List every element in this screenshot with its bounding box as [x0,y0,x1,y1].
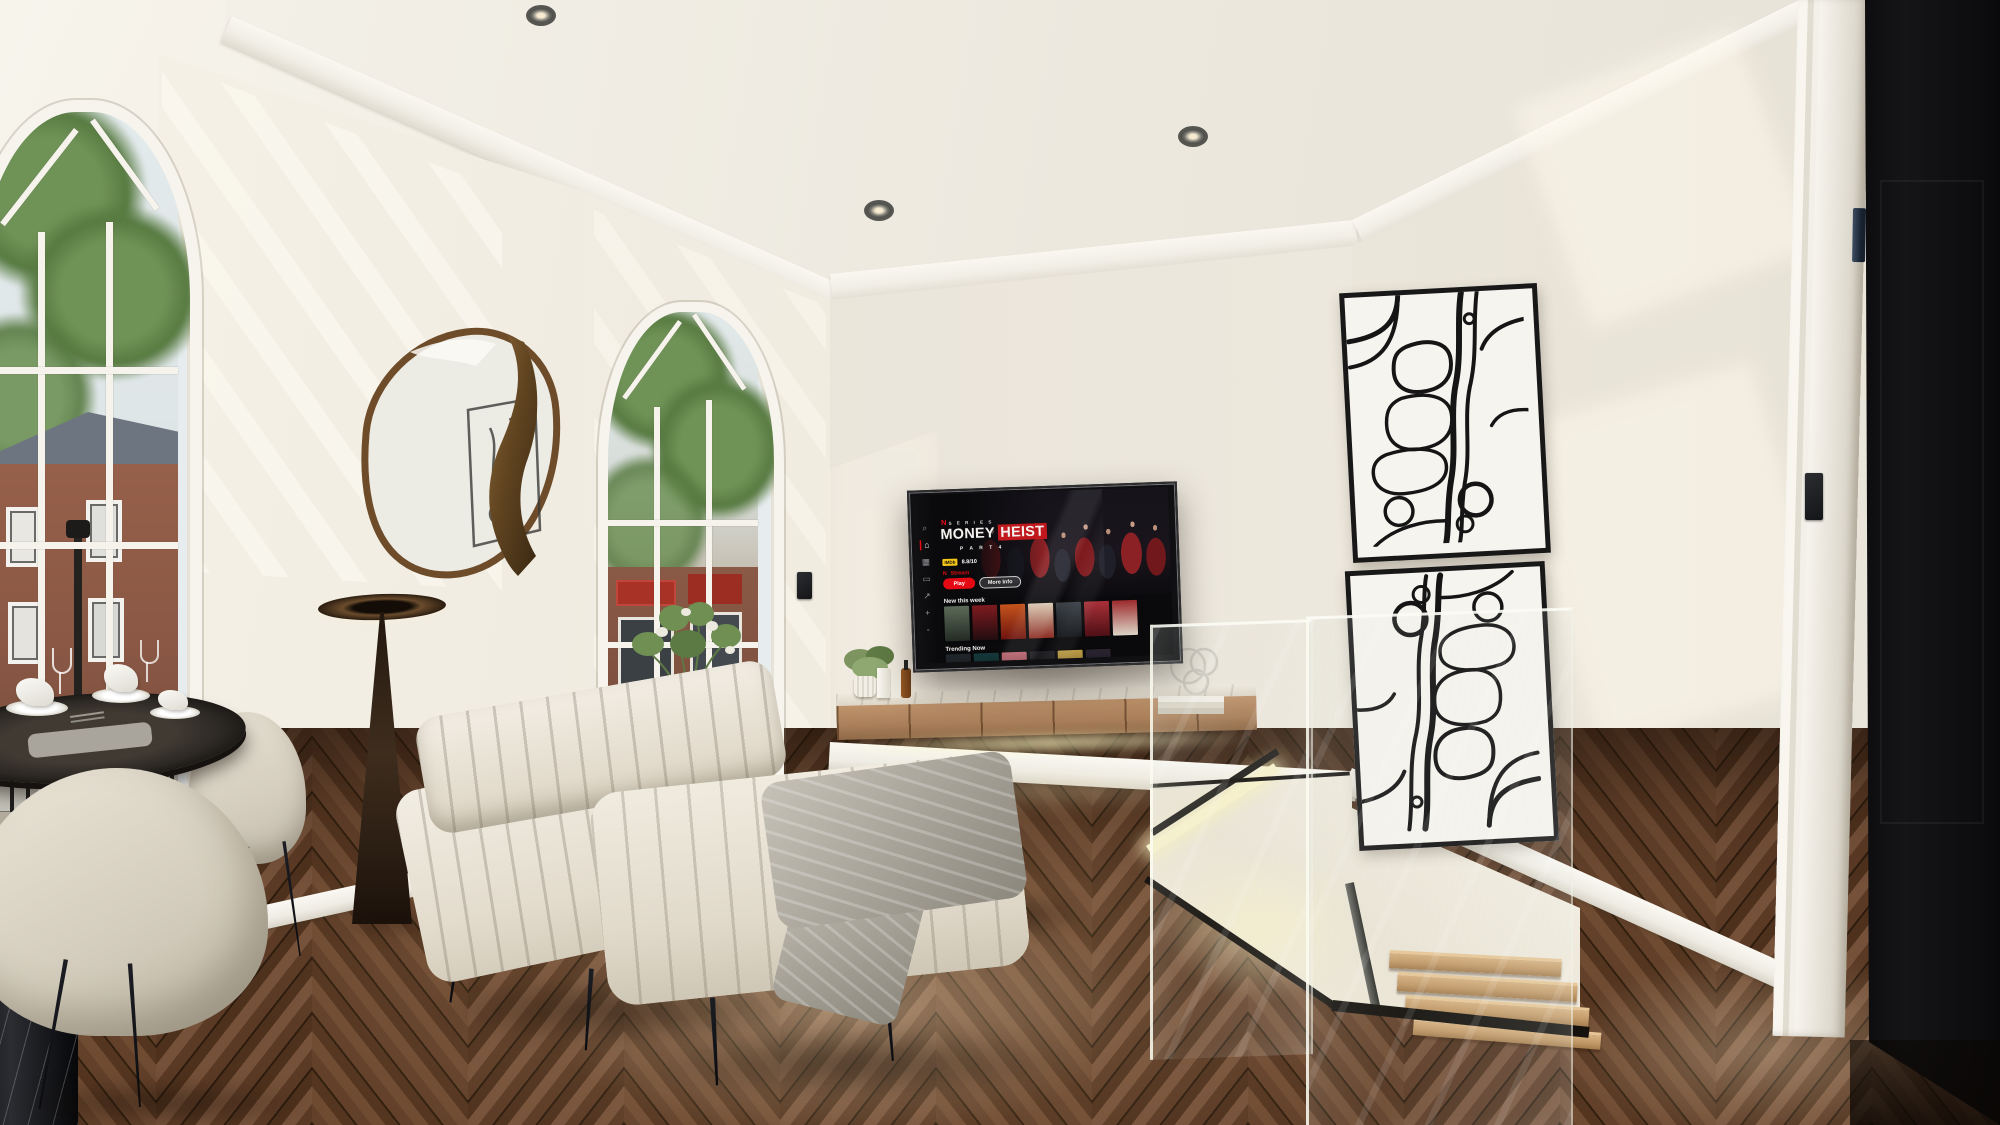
glass-reflection [1309,610,1571,1125]
wine-glass [140,640,159,664]
stream-label: Stream [950,570,969,577]
shows-icon[interactable]: ▦ [920,557,931,567]
ceiling-spotlight [864,200,894,221]
wine-glass [52,648,72,674]
decor-box [877,668,890,698]
door-hinge [1852,208,1866,262]
window-muntin [0,367,178,374]
stream-row: N Stream [943,568,970,578]
play-button[interactable]: Play [943,577,975,589]
netflix-sidebar: ⌕ ⌂ ▦ ▭ ↗ + ◦ [912,495,940,664]
door-panel-line [1880,180,1984,824]
building-window [6,507,40,567]
ceiling-spotlight [1178,126,1208,147]
organic-wall-mirror [350,318,580,618]
poster[interactable] [1112,600,1138,636]
wall-art-upper [1339,283,1551,563]
ceiling-spotlight [526,5,556,26]
plant-pot [854,676,876,697]
building-window [8,602,42,664]
decor-box [891,674,900,698]
poster[interactable] [946,654,972,664]
search-icon[interactable]: ⌕ [919,523,930,533]
stream-n-badge: N [943,570,947,576]
window-muntin [608,520,758,526]
living-room-scene: ⌕ ⌂ ▦ ▭ ↗ + ◦ N S E R I E S MONEYHEIST P… [0,0,2000,1125]
glass-reflection [1153,622,1311,1060]
home-icon[interactable]: ⌂ [920,540,933,550]
mylist-icon[interactable]: + [922,608,933,618]
abstract-line-art [1344,289,1535,548]
glass-balustrade-panel-2 [1306,607,1573,1125]
movies-icon[interactable]: ▭ [921,574,932,584]
floor-shadow-door-corner [1850,1040,2000,1125]
light-switch-back[interactable] [797,572,812,599]
poster[interactable] [944,606,970,642]
wine-glass-stem [59,672,61,694]
profile-icon[interactable]: ◦ [923,625,934,635]
wall-mounted-tv: ⌕ ⌂ ▦ ▭ ↗ + ◦ N S E R I E S MONEYHEIST P… [907,481,1183,672]
window-muntin [0,542,178,549]
imdb-badge: IMDb [942,559,957,567]
rating-row: IMDb 8.8/10 [942,556,977,566]
wine-glass-stem [146,662,148,682]
new-icon[interactable]: ↗ [921,591,932,601]
screen-reflection [972,489,1108,661]
chaise-shadow [640,1025,1070,1100]
glass-balustrade-panel-1 [1150,619,1313,1060]
netflix-ui: ⌕ ⌂ ▦ ▭ ↗ + ◦ N S E R I E S MONEYHEIST P… [912,487,1174,664]
building-window [86,500,122,562]
dining-set-shadow [0,1080,320,1125]
street-lamp-head [66,520,90,538]
tv-screen: ⌕ ⌂ ▦ ▭ ↗ + ◦ N S E R I E S MONEYHEIST P… [912,487,1174,664]
light-switch-right[interactable] [1805,473,1823,520]
